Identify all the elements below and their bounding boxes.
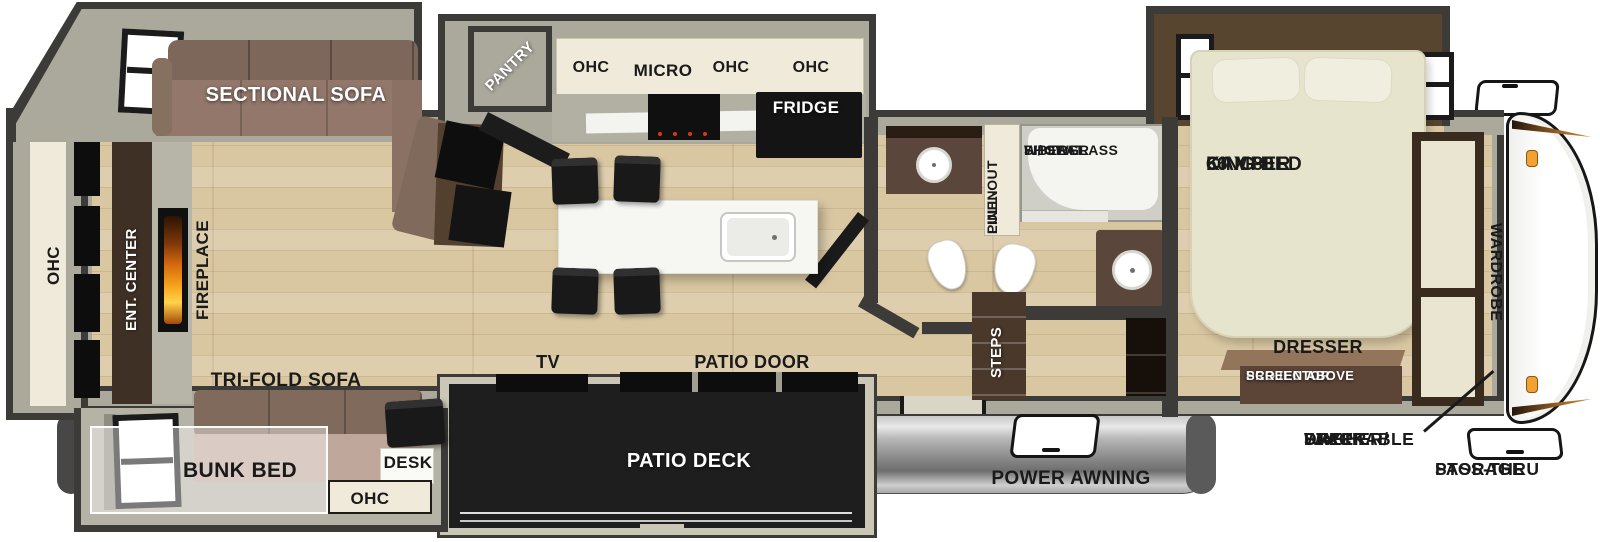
ohc-label-kitchen-left: OHC: [561, 59, 621, 77]
micro-label: MICRO: [623, 61, 703, 81]
pull-out-linen-label: PULL-OUT LINEN: [984, 126, 1022, 234]
steps-label: STEPS: [988, 310, 1010, 394]
bedroom-steps: [1126, 318, 1166, 396]
pull-out-linen-line: LINEN: [984, 190, 1001, 234]
cap-handle-top: [1526, 150, 1538, 167]
fireplace-flame: [164, 216, 182, 324]
fridge-label: FRIDGE: [756, 98, 856, 118]
sectional-sofa-label: SECTIONAL SOFA: [186, 84, 406, 107]
front-cap: [1506, 112, 1598, 424]
patio-door-mullion: [692, 372, 698, 392]
wardrobe-label: WARDROBE: [1482, 200, 1504, 345]
desk-label: DESK: [378, 453, 438, 473]
hitch-latch: [1502, 84, 1518, 88]
ohc-label-kitchen-right: OHC: [781, 59, 841, 77]
ohc-label-rear: OHC: [44, 228, 66, 303]
deck-rail-line: [460, 512, 852, 514]
deck-step-notch: [640, 524, 684, 534]
rear-cabinet-panel: [74, 340, 100, 398]
deck-rail-line: [460, 520, 852, 522]
stackable-label-line: PREP: [1304, 430, 1353, 449]
tri-fold-sofa-label: TRI-FOLD SOFA: [186, 370, 386, 392]
rear-cabinet-panel: [74, 206, 100, 266]
sectional-sofa-arm: [152, 58, 172, 136]
tv-label: TV: [518, 352, 578, 373]
bunk-bed-label: BUNK BED: [140, 459, 340, 483]
awning-end-cap-right: [1186, 413, 1216, 494]
island-chair: [613, 267, 661, 315]
patio-deck-label: PATIO DECK: [609, 450, 769, 473]
rear-cabinet-panel: [74, 274, 100, 332]
cooktop-burner-light: [688, 132, 692, 136]
fireplace-label: FIREPLACE: [193, 208, 215, 333]
dresser-label: DRESSER: [1238, 337, 1398, 358]
shower-label-line: W/ SEAT: [1024, 142, 1084, 160]
cooktop-burner-light: [703, 132, 707, 136]
king-bed-label-line: KING BED: [1206, 155, 1302, 175]
patio-door-mullion: [776, 372, 782, 392]
wardrobe-divider: [1421, 288, 1475, 297]
island-chair: [551, 267, 599, 315]
cap-handle-bottom: [1526, 376, 1538, 393]
half-bath-sink-drain: [932, 163, 936, 167]
rear-cabinet-panel: [74, 140, 100, 196]
half-bath-wall: [864, 117, 878, 303]
half-bath-backsplash: [886, 126, 982, 138]
pillow-left: [1211, 56, 1300, 103]
pass-thru-latch: [1506, 450, 1524, 454]
pass-thru-label-line: STORAGE: [1435, 460, 1524, 479]
rv-floorplan: SECTIONAL SOFA PANTRY OHC MICRO OHC OHC …: [0, 0, 1600, 542]
baggage-door-latch: [1042, 448, 1060, 452]
pass-thru-storage-door: [1466, 428, 1564, 460]
power-awning-label: POWER AWNING: [971, 468, 1171, 490]
desk-chair: [384, 398, 445, 448]
island-chair: [551, 157, 599, 205]
ohc-label-desk: OHC: [340, 489, 400, 509]
island-chair: [613, 155, 661, 203]
projector-screen-label-line: SCREEN ABOVE: [1246, 369, 1354, 384]
ohc-label-kitchen-mid: OHC: [701, 59, 761, 77]
media-tv-panel-2: [448, 184, 511, 247]
patio-door-label: PATIO DOOR: [672, 352, 832, 373]
tv-wall-panel: [496, 374, 588, 392]
shower-ledge: [1022, 210, 1108, 222]
pillow-right: [1303, 56, 1392, 103]
patio-door-panels: [620, 372, 858, 392]
wardrobe-unit: [1412, 132, 1484, 406]
bath-sink-drain: [1130, 268, 1135, 273]
bedroom-window-right-bar: [1423, 82, 1449, 87]
island-sink-drain: [772, 235, 777, 240]
ent-center-label: ENT. CENTER: [123, 195, 143, 365]
cooktop-burner-light: [673, 132, 677, 136]
cooktop-burner-light: [658, 132, 662, 136]
island-sink-basin: [727, 218, 789, 256]
sectional-sofa-back: [168, 40, 418, 82]
